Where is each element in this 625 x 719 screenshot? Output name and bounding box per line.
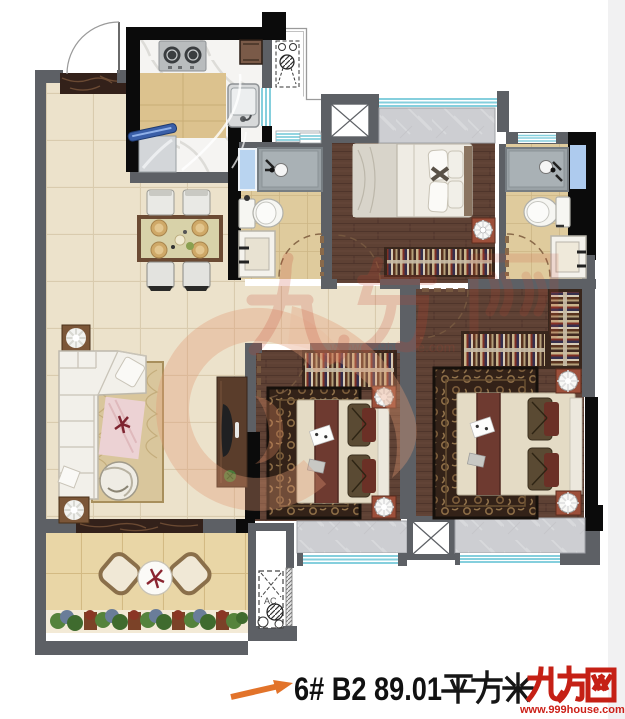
svg-text:www.999house.com: www.999house.com: [519, 704, 625, 716]
svg-text:6# B2 89.01: 6# B2 89.01: [294, 671, 442, 707]
svg-text:www.999house.com: www.999house.com: [329, 339, 455, 355]
